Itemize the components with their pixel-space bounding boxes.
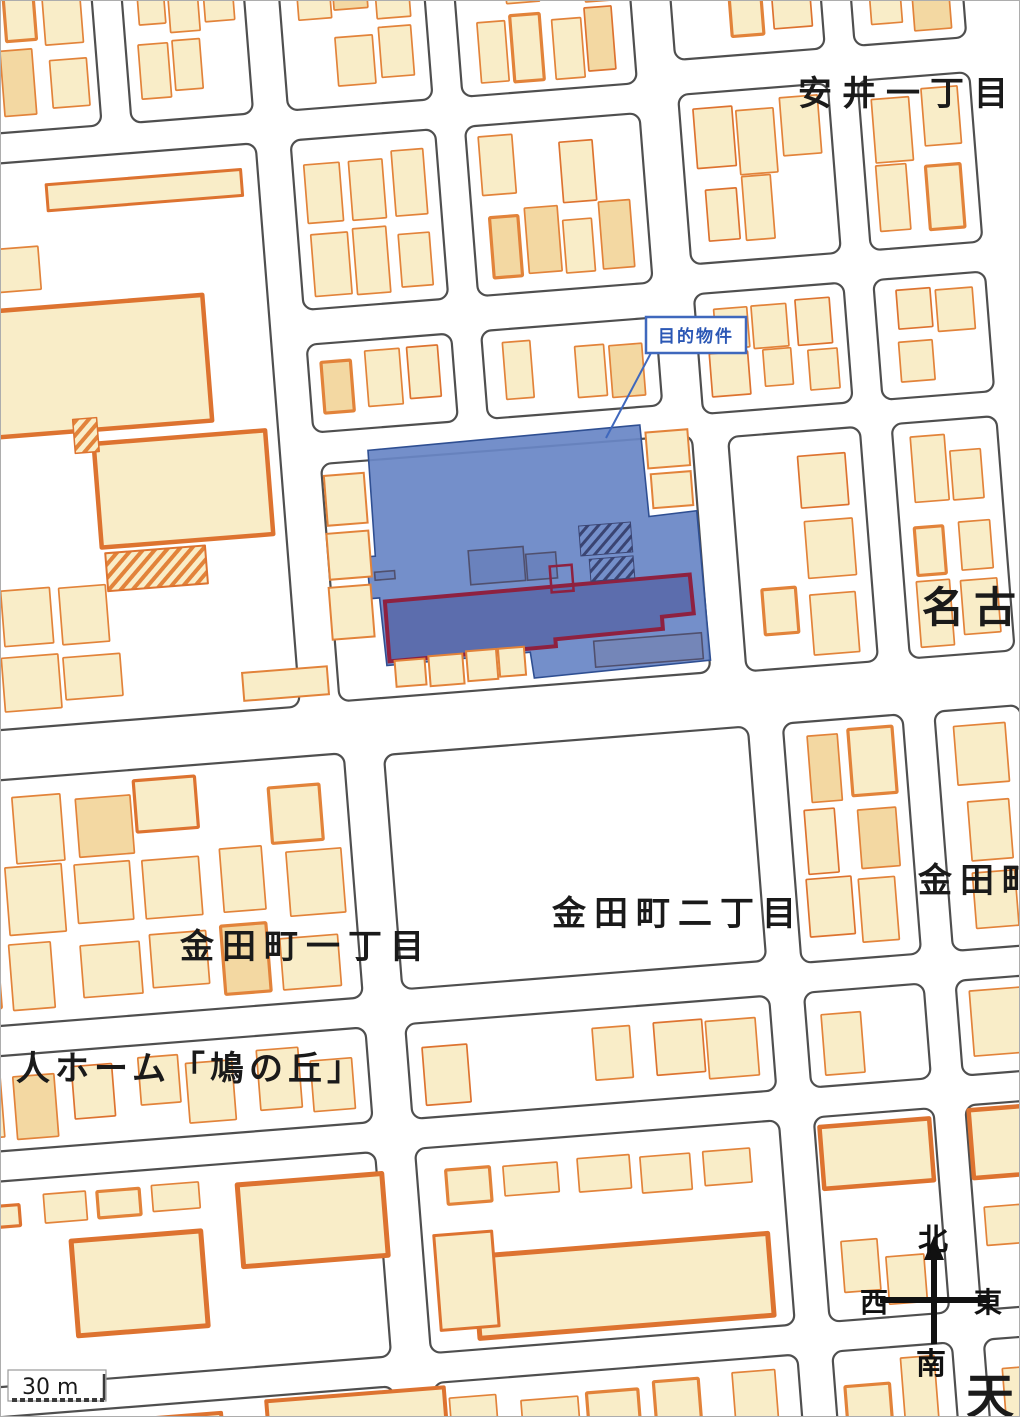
building (876, 164, 911, 232)
building (592, 1026, 633, 1081)
building (751, 303, 789, 348)
building (736, 108, 778, 175)
district-label-nagoya: 名古 (922, 583, 1020, 632)
scale-bar-label: 30 m (22, 1375, 78, 1400)
building (133, 776, 198, 832)
district-label-kaneda-right: 金田町 (917, 861, 1020, 901)
building (586, 1389, 643, 1417)
building (237, 1174, 388, 1267)
hatched-area (105, 545, 208, 591)
building (807, 734, 842, 803)
building (771, 0, 812, 29)
building (524, 206, 562, 274)
building (502, 340, 534, 399)
building (510, 13, 545, 82)
building (201, 0, 234, 22)
building (50, 58, 91, 108)
building (563, 218, 596, 273)
building (640, 1153, 692, 1193)
building (886, 1254, 928, 1304)
building (142, 856, 203, 919)
building (845, 1383, 895, 1417)
building (703, 1148, 753, 1186)
building (1, 654, 62, 712)
building (808, 348, 840, 390)
building (858, 876, 899, 942)
building (968, 799, 1014, 861)
compass-west-label: 西 (860, 1286, 888, 1319)
building (477, 21, 509, 83)
building (795, 297, 833, 345)
building (12, 794, 65, 864)
compass-north-label: 北 (918, 1223, 948, 1258)
building (311, 232, 352, 297)
building (365, 348, 404, 406)
district-label-ten: 天 (966, 1369, 1020, 1417)
building (335, 35, 376, 86)
building (5, 864, 67, 936)
building (330, 0, 368, 10)
building (0, 1205, 21, 1230)
building (896, 288, 933, 329)
building (449, 1394, 501, 1417)
building (321, 360, 354, 413)
building (352, 226, 390, 294)
compass-east-label: 東 (974, 1286, 1002, 1319)
building (0, 295, 212, 439)
building (819, 1118, 934, 1188)
building (969, 987, 1020, 1056)
district-label-hatonooka: 人ホーム「鳩の丘」 (16, 1049, 366, 1089)
building (797, 453, 848, 508)
building (958, 520, 993, 570)
building (348, 159, 386, 220)
building (984, 1204, 1020, 1246)
building (810, 591, 860, 655)
building (911, 0, 952, 31)
building (391, 149, 428, 217)
callout-label: 目的物件 (658, 326, 734, 347)
compass-south-label: 南 (916, 1347, 946, 1382)
building (0, 246, 41, 292)
hatched-area (73, 418, 100, 454)
building (804, 518, 856, 578)
building (294, 0, 332, 20)
building (74, 861, 134, 924)
building (969, 1104, 1020, 1178)
building (0, 49, 37, 117)
building (914, 526, 946, 576)
district-label-yasui: 安井一丁目 (798, 74, 1018, 114)
building (75, 795, 134, 857)
district-label-kaneda2: 金田町二丁目 (551, 894, 804, 934)
building (552, 18, 586, 80)
building (398, 232, 433, 287)
building (138, 43, 172, 99)
building (804, 808, 839, 874)
building (434, 1231, 499, 1330)
building (503, 1162, 559, 1196)
building (705, 188, 740, 241)
building (763, 348, 794, 387)
building (80, 941, 143, 997)
building (378, 25, 414, 77)
building (609, 343, 646, 397)
district-label-kaneda1: 金田町一丁目 (179, 927, 432, 967)
building (858, 807, 901, 869)
scale-bar: 30 m (8, 1370, 106, 1401)
building (899, 340, 936, 382)
building (910, 434, 949, 502)
building (42, 0, 83, 45)
building (97, 1188, 141, 1218)
building (71, 1231, 208, 1336)
building (709, 351, 751, 397)
building (9, 942, 56, 1011)
map-canvas: 目的物件 安井一丁目 名古 金田町二丁目 金田町一丁目 人ホーム「鳩の丘」 金田… (0, 0, 1020, 1417)
building (598, 200, 634, 269)
building (848, 726, 897, 796)
building (867, 0, 902, 25)
building (821, 1012, 865, 1076)
building (94, 430, 274, 547)
building (577, 1155, 632, 1192)
building (167, 0, 200, 33)
building (584, 6, 616, 71)
building (43, 1191, 87, 1223)
building (286, 848, 346, 916)
building (693, 106, 736, 168)
building (705, 1018, 759, 1079)
building (521, 1396, 583, 1417)
building (172, 39, 203, 91)
building (63, 653, 123, 700)
building (762, 587, 799, 635)
building (373, 0, 411, 19)
building (446, 1167, 492, 1205)
building (728, 0, 764, 37)
building (3, 0, 37, 42)
building (422, 1044, 471, 1105)
building (806, 876, 855, 937)
building (489, 215, 522, 277)
city-block (384, 726, 766, 989)
building (653, 1378, 704, 1417)
building (151, 1182, 200, 1212)
target-property-highlight (225, 421, 711, 701)
map-page: 目的物件 安井一丁目 名古 金田町二丁目 金田町一丁目 人ホーム「鳩の丘」 金田… (0, 0, 1020, 1417)
building (478, 134, 516, 195)
city-block (873, 271, 994, 399)
building (304, 162, 344, 223)
building (1, 587, 54, 646)
building (841, 1239, 881, 1293)
building (407, 345, 442, 399)
building (925, 164, 965, 230)
building (653, 1019, 705, 1075)
building (742, 174, 776, 240)
building (575, 344, 608, 397)
building (953, 722, 1009, 785)
building (559, 140, 597, 203)
building (135, 0, 165, 25)
building (59, 585, 110, 645)
building (268, 784, 323, 843)
map-rotated-layer (0, 0, 1020, 1417)
building (935, 287, 975, 331)
building (219, 846, 266, 912)
building (732, 1370, 781, 1417)
building (950, 449, 984, 500)
